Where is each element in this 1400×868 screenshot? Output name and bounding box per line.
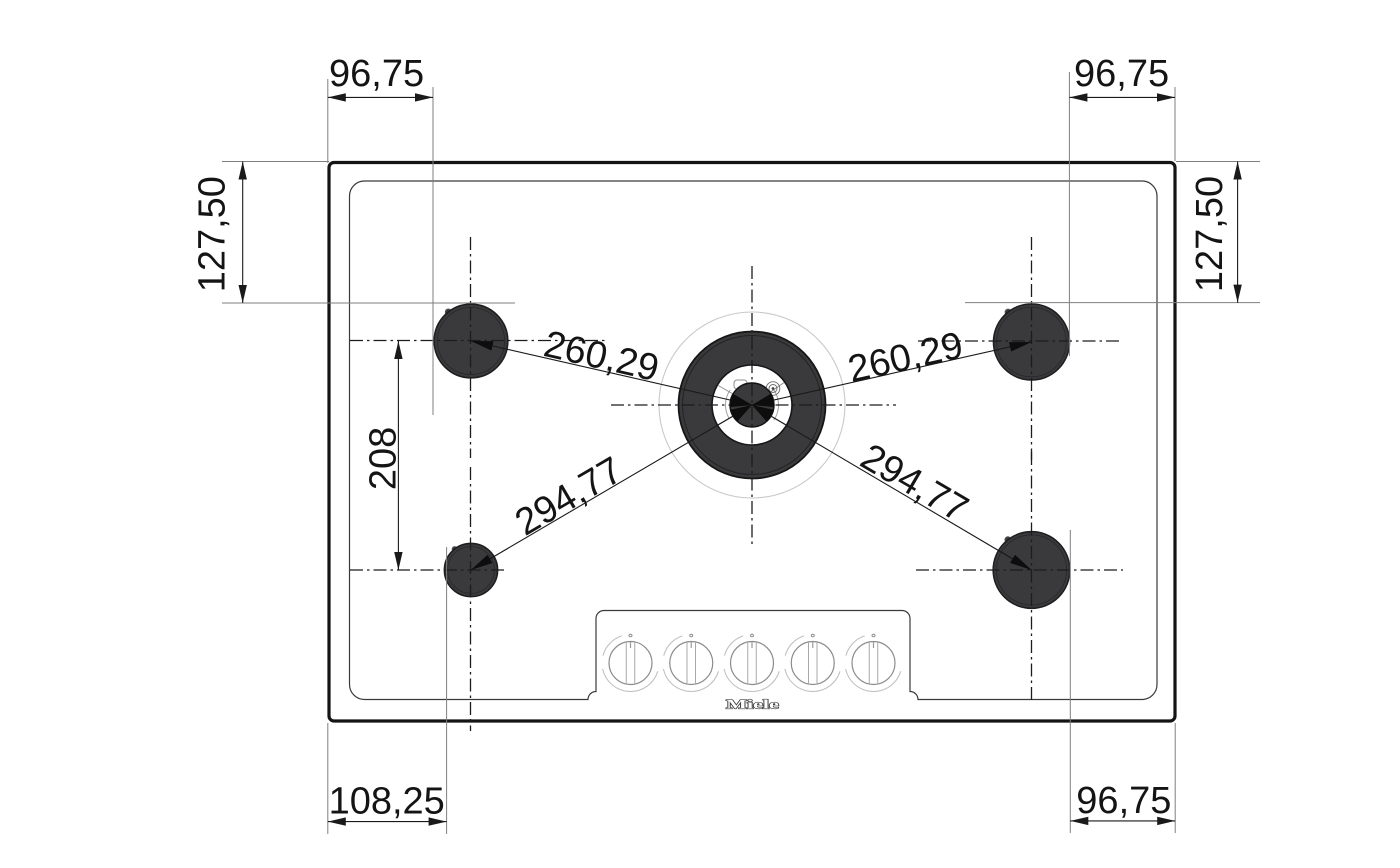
svg-text:96,75: 96,75 (1076, 780, 1171, 822)
svg-text:96,75: 96,75 (1074, 53, 1169, 95)
svg-text:127,50: 127,50 (191, 176, 233, 292)
svg-text:208: 208 (362, 427, 404, 490)
svg-text:108,25: 108,25 (329, 781, 445, 823)
svg-text:127,50: 127,50 (1189, 176, 1231, 292)
svg-text:Miele: Miele (726, 697, 779, 711)
svg-text:96,75: 96,75 (329, 53, 424, 95)
